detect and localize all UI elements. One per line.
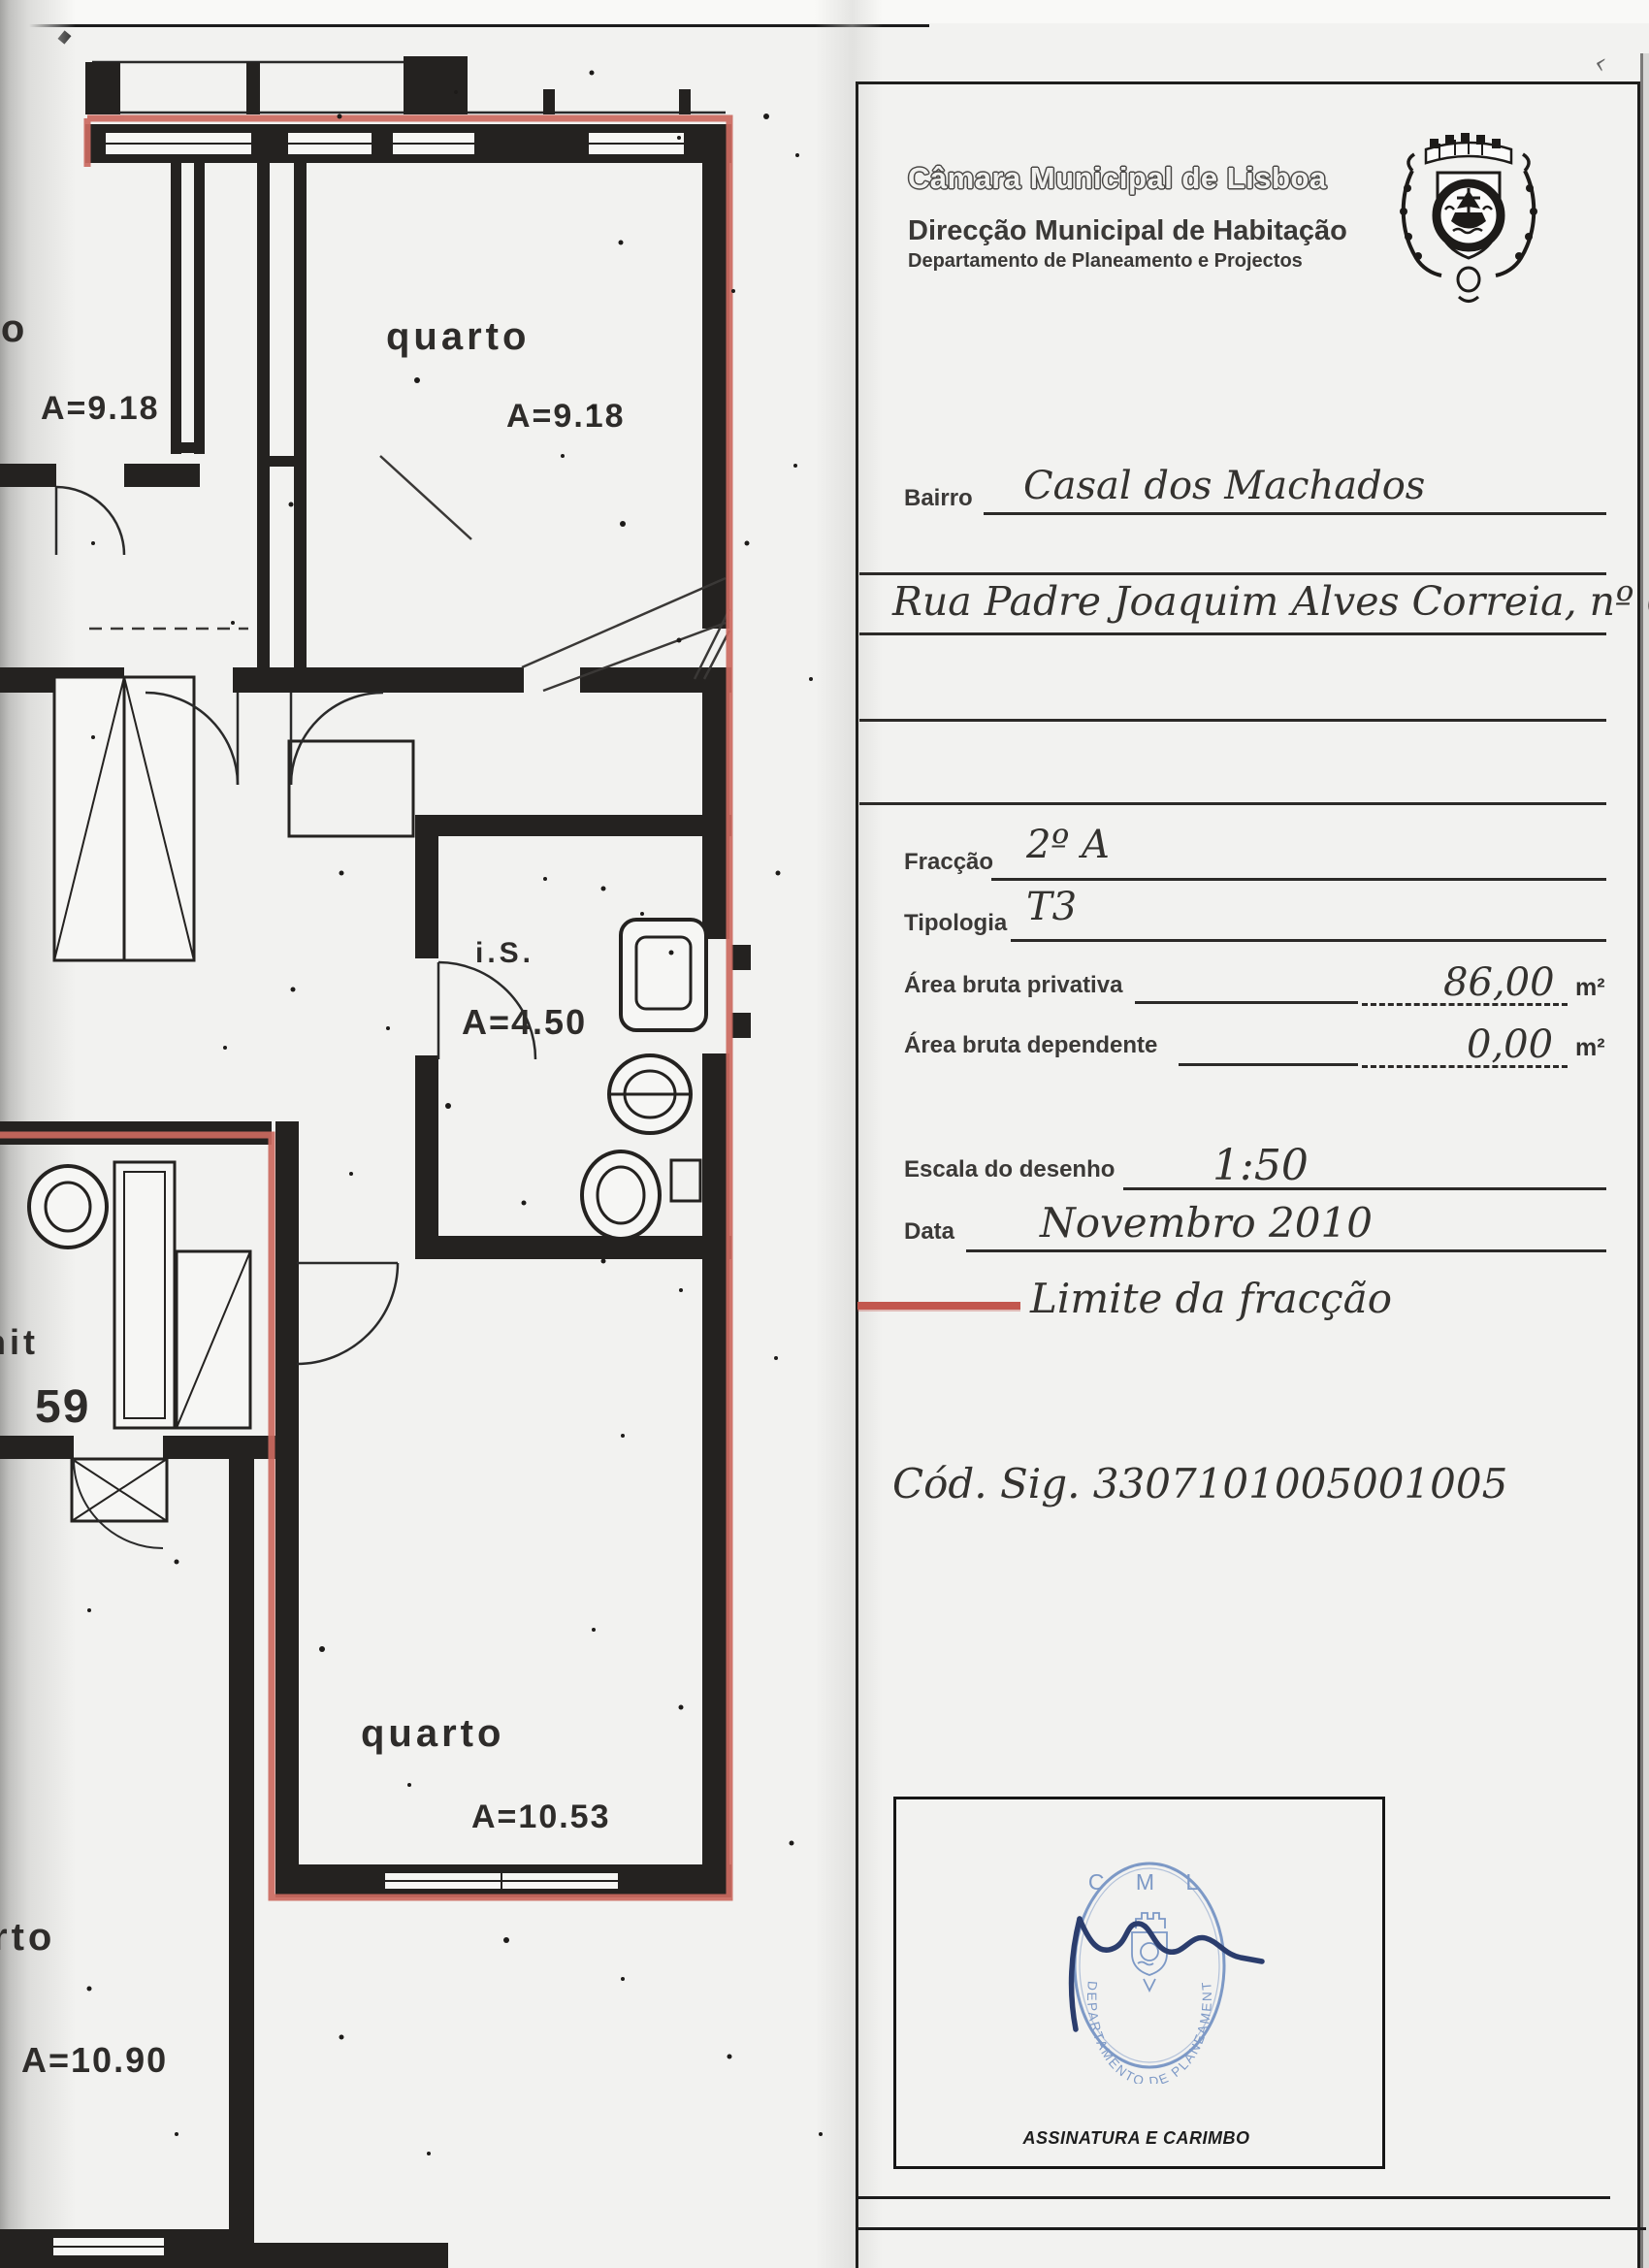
floor-plan: rto A=9.18 quarto A=9.18 i.S. A=4.50 zan… [0, 0, 857, 2268]
bairro-label: Bairro [904, 485, 973, 512]
area-privativa-fill-line [1135, 1001, 1358, 1004]
plan-hatch-lines [89, 456, 729, 691]
direction-title: Direcção Municipal de Habitação [908, 215, 1347, 247]
page-right-margin [1643, 53, 1649, 2268]
fraccao-value: 2º A [1026, 823, 1110, 867]
upper-structure [85, 56, 726, 114]
tipologia-label: Tipologia [904, 910, 1007, 937]
room-area-quarto-bottomleft: A=10.90 [21, 2040, 168, 2080]
legend-red-line [857, 1302, 1020, 1310]
department-title: Departamento de Planeamento e Projectos [908, 250, 1303, 273]
escala-value: 1:50 [1212, 1141, 1309, 1190]
bairro-value: Casal dos Machados [1023, 464, 1425, 508]
data-underline [966, 1249, 1606, 1252]
room-label-is: i.S. [475, 937, 534, 969]
room-label-quarto-bottomleft: rto [0, 1916, 55, 1959]
legend-label: Limite da fracção [1030, 1275, 1392, 1322]
room-area-quarto-topmid: A=9.18 [506, 398, 626, 435]
escala-label: Escala do desenho [904, 1156, 1115, 1183]
room-area-is: A=4.50 [462, 1002, 587, 1042]
data-label: Data [904, 1218, 954, 1246]
area-privativa-value: 86,00 [1443, 960, 1555, 1005]
area-dependente-unit: m² [1575, 1034, 1605, 1062]
fraccao-underline [991, 878, 1606, 881]
room-label-quarto-topmid: quarto [386, 315, 530, 358]
handwritten-tick-mark: ‹ [1591, 46, 1610, 81]
address-line-2 [859, 632, 1606, 635]
room-label-zanit: zanit [0, 1322, 39, 1362]
room-label-quarto-topleft: rto [0, 308, 28, 350]
tipologia-underline [1011, 939, 1606, 942]
room-area-quarto-bottom: A=10.53 [471, 1798, 611, 1835]
data-value: Novembro 2010 [1040, 1199, 1373, 1247]
tipologia-value: T3 [1026, 885, 1077, 929]
scanned-floorplan-page: ‹ [0, 0, 1649, 2268]
address-value: Rua Padre Joaquim Alves Correia, nº 6 [892, 578, 1649, 625]
fraccao-label: Fracção [904, 849, 993, 876]
plan-closets [54, 677, 413, 1521]
area-dependente-label: Área bruta dependente [904, 1032, 1157, 1059]
panel-bottom-line-2 [857, 2227, 1646, 2230]
bairro-underline [984, 512, 1606, 515]
cod-sig-value: Cód. Sig. 3307101005001005 [892, 1460, 1507, 1507]
area-privativa-label: Área bruta privativa [904, 972, 1122, 999]
address-line-1 [859, 572, 1606, 575]
address-line-3 [859, 719, 1606, 722]
panel-bottom-line-1 [857, 2196, 1610, 2199]
area-dependente-value: 0,00 [1467, 1022, 1553, 1067]
room-label-quarto-bottom: quarto [361, 1712, 504, 1755]
address-line-4 [859, 802, 1606, 805]
org-title: Câmara Municipal de Lisboa [908, 161, 1327, 196]
area-dependente-fill-line [1179, 1063, 1358, 1066]
escala-underline [1123, 1187, 1606, 1190]
lisbon-coat-of-arms-icon [1377, 113, 1552, 307]
room-area-zanit: 59 [35, 1381, 90, 1433]
room-area-quarto-topleft: A=9.18 [41, 390, 160, 427]
area-privativa-unit: m² [1575, 974, 1605, 1002]
signature-stroke [1043, 1892, 1276, 2047]
signature-caption: ASSINATURA E CARIMBO [893, 2128, 1379, 2149]
